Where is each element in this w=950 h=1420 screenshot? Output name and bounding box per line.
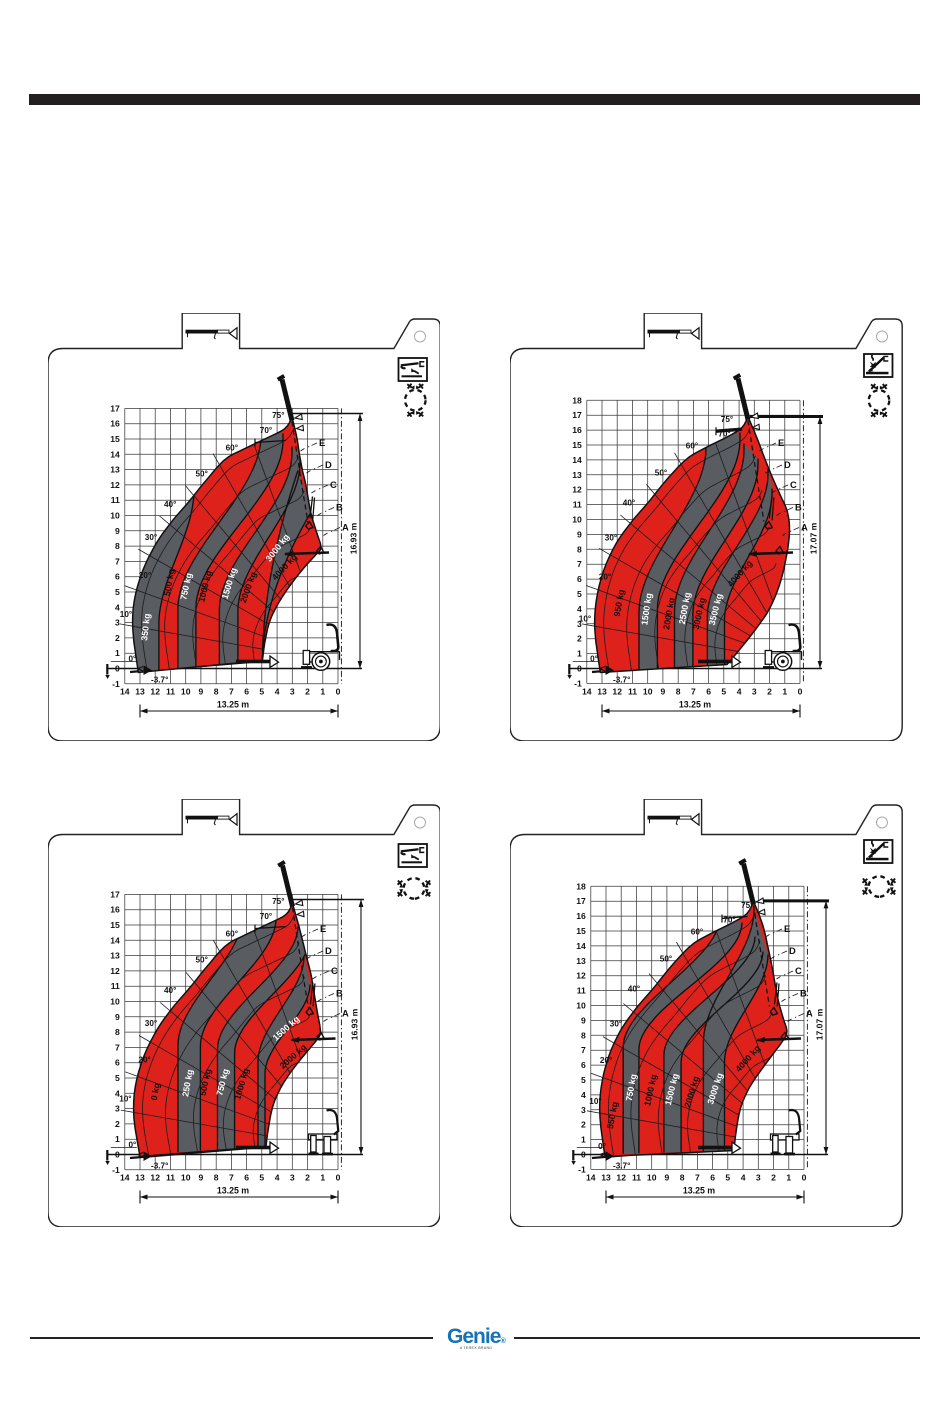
svg-text:16: 16 — [577, 911, 587, 921]
svg-text:50°: 50° — [655, 468, 667, 477]
svg-text:14: 14 — [582, 686, 592, 696]
svg-text:0: 0 — [115, 663, 120, 673]
svg-text:5: 5 — [726, 1172, 731, 1182]
svg-text:0: 0 — [581, 1149, 586, 1159]
svg-text:13.25 m: 13.25 m — [216, 699, 248, 709]
svg-text:2: 2 — [771, 1172, 776, 1182]
svg-text:15: 15 — [577, 926, 587, 936]
svg-text:A: A — [342, 521, 349, 532]
svg-text:1: 1 — [581, 1134, 586, 1144]
svg-text:8: 8 — [577, 544, 582, 554]
svg-text:-1: -1 — [575, 678, 583, 688]
svg-text:50°: 50° — [195, 469, 207, 478]
svg-text:4: 4 — [274, 1172, 279, 1182]
svg-text:B: B — [800, 987, 807, 998]
svg-text:8: 8 — [213, 1172, 218, 1182]
svg-text:A: A — [342, 1007, 349, 1018]
svg-text:17: 17 — [110, 889, 120, 899]
svg-text:-3.7°: -3.7° — [613, 675, 630, 684]
svg-text:3: 3 — [752, 686, 757, 696]
svg-text:D: D — [784, 459, 791, 470]
svg-text:-1: -1 — [112, 1164, 120, 1174]
svg-text:D: D — [325, 945, 332, 956]
svg-text:A: A — [806, 1007, 813, 1018]
svg-text:5: 5 — [115, 586, 120, 596]
svg-text:70°: 70° — [259, 911, 271, 920]
svg-text:4: 4 — [741, 1172, 746, 1182]
svg-text:16.93 m: 16.93 m — [348, 522, 358, 554]
svg-text:17.07 m: 17.07 m — [815, 1008, 825, 1040]
svg-text:13: 13 — [577, 955, 587, 965]
svg-text:14: 14 — [120, 1172, 130, 1182]
svg-text:11: 11 — [110, 495, 119, 505]
svg-text:16: 16 — [110, 904, 120, 914]
svg-text:0: 0 — [577, 663, 582, 673]
svg-text:-1: -1 — [579, 1164, 587, 1174]
svg-text:60°: 60° — [691, 927, 703, 936]
svg-text:6: 6 — [581, 1060, 586, 1070]
svg-text:75°: 75° — [721, 414, 733, 423]
svg-text:6: 6 — [115, 571, 120, 581]
svg-text:18: 18 — [577, 881, 587, 891]
svg-text:4: 4 — [581, 1089, 586, 1099]
svg-text:10°: 10° — [119, 610, 131, 619]
svg-text:0: 0 — [335, 686, 340, 696]
svg-text:16.93 m: 16.93 m — [349, 1008, 359, 1040]
svg-text:9: 9 — [661, 686, 666, 696]
svg-text:5: 5 — [259, 1172, 264, 1182]
svg-text:5: 5 — [581, 1074, 586, 1084]
svg-text:8: 8 — [581, 1030, 586, 1040]
svg-text:11: 11 — [166, 686, 175, 696]
svg-text:13: 13 — [598, 686, 608, 696]
svg-text:11: 11 — [628, 686, 637, 696]
svg-text:40°: 40° — [164, 985, 176, 994]
svg-text:12: 12 — [617, 1172, 627, 1182]
svg-text:10: 10 — [110, 510, 120, 520]
svg-text:13: 13 — [602, 1172, 612, 1182]
svg-text:1: 1 — [115, 648, 120, 658]
svg-text:30°: 30° — [144, 532, 156, 541]
svg-text:50°: 50° — [195, 955, 207, 964]
svg-text:0: 0 — [798, 686, 803, 696]
svg-text:12: 12 — [110, 965, 120, 975]
svg-text:14: 14 — [586, 1172, 596, 1182]
svg-text:C: C — [795, 965, 802, 976]
svg-text:4: 4 — [737, 686, 742, 696]
svg-text:75°: 75° — [272, 410, 284, 419]
svg-text:13.25 m: 13.25 m — [216, 1185, 248, 1195]
svg-text:13: 13 — [573, 469, 583, 479]
svg-text:5: 5 — [115, 1072, 120, 1082]
svg-text:7: 7 — [115, 1042, 120, 1052]
svg-text:0°: 0° — [128, 654, 136, 663]
svg-text:8: 8 — [680, 1172, 685, 1182]
svg-text:20°: 20° — [599, 572, 611, 581]
svg-text:3: 3 — [115, 1103, 120, 1113]
svg-text:9: 9 — [115, 525, 120, 535]
svg-text:40°: 40° — [628, 984, 640, 993]
svg-text:11: 11 — [577, 985, 586, 995]
svg-text:B: B — [336, 987, 343, 998]
svg-text:5: 5 — [259, 686, 264, 696]
svg-text:9: 9 — [577, 529, 582, 539]
svg-text:11: 11 — [573, 499, 582, 509]
svg-text:12: 12 — [613, 686, 623, 696]
svg-text:7: 7 — [577, 559, 582, 569]
svg-text:20°: 20° — [600, 1056, 612, 1065]
svg-text:1: 1 — [783, 686, 788, 696]
svg-text:12: 12 — [150, 686, 160, 696]
svg-text:16: 16 — [110, 418, 120, 428]
svg-text:60°: 60° — [225, 929, 237, 938]
svg-text:0°: 0° — [599, 1142, 607, 1151]
svg-text:A: A — [801, 521, 808, 532]
svg-text:2: 2 — [115, 1118, 120, 1128]
svg-text:75°: 75° — [272, 896, 284, 905]
svg-text:6: 6 — [115, 1057, 120, 1067]
svg-text:6: 6 — [244, 1172, 249, 1182]
svg-text:6: 6 — [577, 574, 582, 584]
svg-text:7: 7 — [229, 686, 234, 696]
svg-text:1: 1 — [787, 1172, 792, 1182]
svg-text:17: 17 — [573, 410, 583, 420]
svg-text:13: 13 — [135, 686, 145, 696]
svg-text:0: 0 — [802, 1172, 807, 1182]
svg-text:13: 13 — [135, 1172, 145, 1182]
svg-text:10: 10 — [181, 686, 191, 696]
svg-text:6: 6 — [707, 686, 712, 696]
svg-text:2: 2 — [115, 632, 120, 642]
svg-text:-3.7°: -3.7° — [151, 1161, 168, 1170]
svg-text:1: 1 — [320, 1172, 325, 1182]
svg-text:9: 9 — [115, 1011, 120, 1021]
svg-text:9: 9 — [198, 686, 203, 696]
svg-text:70°: 70° — [259, 425, 271, 434]
svg-text:E: E — [778, 437, 784, 448]
svg-text:C: C — [331, 965, 338, 976]
svg-text:D: D — [325, 459, 332, 470]
svg-text:17: 17 — [110, 403, 120, 413]
svg-text:11: 11 — [166, 1172, 175, 1182]
svg-text:18: 18 — [573, 395, 583, 405]
svg-text:7: 7 — [581, 1045, 586, 1055]
svg-text:E: E — [784, 923, 790, 934]
svg-text:14: 14 — [110, 935, 120, 945]
svg-text:12: 12 — [110, 479, 120, 489]
svg-text:12: 12 — [150, 1172, 160, 1182]
svg-text:10°: 10° — [119, 1094, 131, 1103]
svg-text:8: 8 — [676, 686, 681, 696]
svg-text:12: 12 — [577, 970, 587, 980]
svg-text:7: 7 — [695, 1172, 700, 1182]
svg-text:9: 9 — [665, 1172, 670, 1182]
svg-text:5: 5 — [577, 588, 582, 598]
svg-text:8: 8 — [115, 1027, 120, 1037]
svg-text:13: 13 — [110, 950, 120, 960]
svg-text:11: 11 — [632, 1172, 641, 1182]
svg-text:-3.7°: -3.7° — [613, 1161, 630, 1170]
svg-text:20°: 20° — [138, 1055, 150, 1064]
svg-text:9: 9 — [198, 1172, 203, 1182]
svg-text:70°: 70° — [724, 915, 736, 924]
svg-text:15: 15 — [110, 920, 120, 930]
svg-text:30°: 30° — [144, 1018, 156, 1027]
svg-text:12: 12 — [573, 484, 583, 494]
svg-text:10: 10 — [577, 1000, 587, 1010]
svg-text:3: 3 — [289, 1172, 294, 1182]
svg-text:40°: 40° — [164, 499, 176, 508]
svg-text:50°: 50° — [660, 954, 672, 963]
svg-text:7: 7 — [115, 556, 120, 566]
svg-text:3: 3 — [581, 1104, 586, 1114]
svg-text:4: 4 — [274, 686, 279, 696]
svg-text:2: 2 — [581, 1119, 586, 1129]
svg-text:14: 14 — [110, 449, 120, 459]
svg-text:7: 7 — [691, 686, 696, 696]
svg-text:9: 9 — [581, 1015, 586, 1025]
svg-text:14: 14 — [120, 686, 130, 696]
svg-text:10: 10 — [181, 1172, 191, 1182]
svg-text:2: 2 — [305, 686, 310, 696]
svg-text:15: 15 — [573, 440, 583, 450]
svg-text:20°: 20° — [138, 570, 150, 579]
svg-text:16: 16 — [573, 425, 583, 435]
svg-text:2: 2 — [305, 1172, 310, 1182]
svg-text:40°: 40° — [623, 498, 635, 507]
svg-text:8: 8 — [213, 686, 218, 696]
svg-text:60°: 60° — [686, 441, 698, 450]
svg-text:14: 14 — [573, 454, 583, 464]
svg-text:0: 0 — [115, 1149, 120, 1159]
svg-text:15: 15 — [110, 434, 120, 444]
svg-text:8: 8 — [115, 541, 120, 551]
svg-text:7: 7 — [229, 1172, 234, 1182]
svg-text:E: E — [319, 437, 325, 448]
svg-text:3: 3 — [756, 1172, 761, 1182]
svg-text:10: 10 — [647, 1172, 657, 1182]
svg-text:30°: 30° — [605, 533, 617, 542]
svg-text:30°: 30° — [610, 1019, 622, 1028]
svg-text:B: B — [336, 501, 343, 512]
svg-text:D: D — [789, 945, 796, 956]
svg-text:1: 1 — [115, 1134, 120, 1144]
svg-text:C: C — [790, 479, 797, 490]
svg-text:4: 4 — [577, 603, 582, 613]
svg-text:2: 2 — [577, 633, 582, 643]
svg-text:0°: 0° — [128, 1140, 136, 1149]
svg-text:3: 3 — [289, 686, 294, 696]
svg-text:10: 10 — [643, 686, 653, 696]
svg-text:13.25 m: 13.25 m — [679, 699, 711, 709]
svg-text:10: 10 — [573, 514, 583, 524]
svg-text:-1: -1 — [112, 678, 120, 688]
svg-text:B: B — [795, 501, 802, 512]
svg-text:14: 14 — [577, 940, 587, 950]
svg-text:11: 11 — [110, 981, 119, 991]
svg-text:17: 17 — [577, 896, 587, 906]
svg-text:10°: 10° — [590, 1096, 602, 1105]
svg-text:6: 6 — [711, 1172, 716, 1182]
svg-text:10: 10 — [110, 996, 120, 1006]
svg-text:13: 13 — [110, 464, 120, 474]
svg-text:6: 6 — [244, 686, 249, 696]
svg-text:10°: 10° — [579, 614, 591, 623]
svg-text:0: 0 — [335, 1172, 340, 1182]
svg-text:17.07 m: 17.07 m — [809, 522, 819, 554]
svg-text:1: 1 — [320, 686, 325, 696]
svg-text:2: 2 — [767, 686, 772, 696]
svg-text:1: 1 — [577, 648, 582, 658]
svg-text:60°: 60° — [225, 443, 237, 452]
svg-text:-3.7°: -3.7° — [151, 675, 168, 684]
svg-text:E: E — [320, 923, 326, 934]
svg-text:5: 5 — [722, 686, 727, 696]
svg-text:C: C — [330, 479, 337, 490]
svg-text:0°: 0° — [590, 654, 598, 663]
svg-text:13.25 m: 13.25 m — [683, 1185, 715, 1195]
